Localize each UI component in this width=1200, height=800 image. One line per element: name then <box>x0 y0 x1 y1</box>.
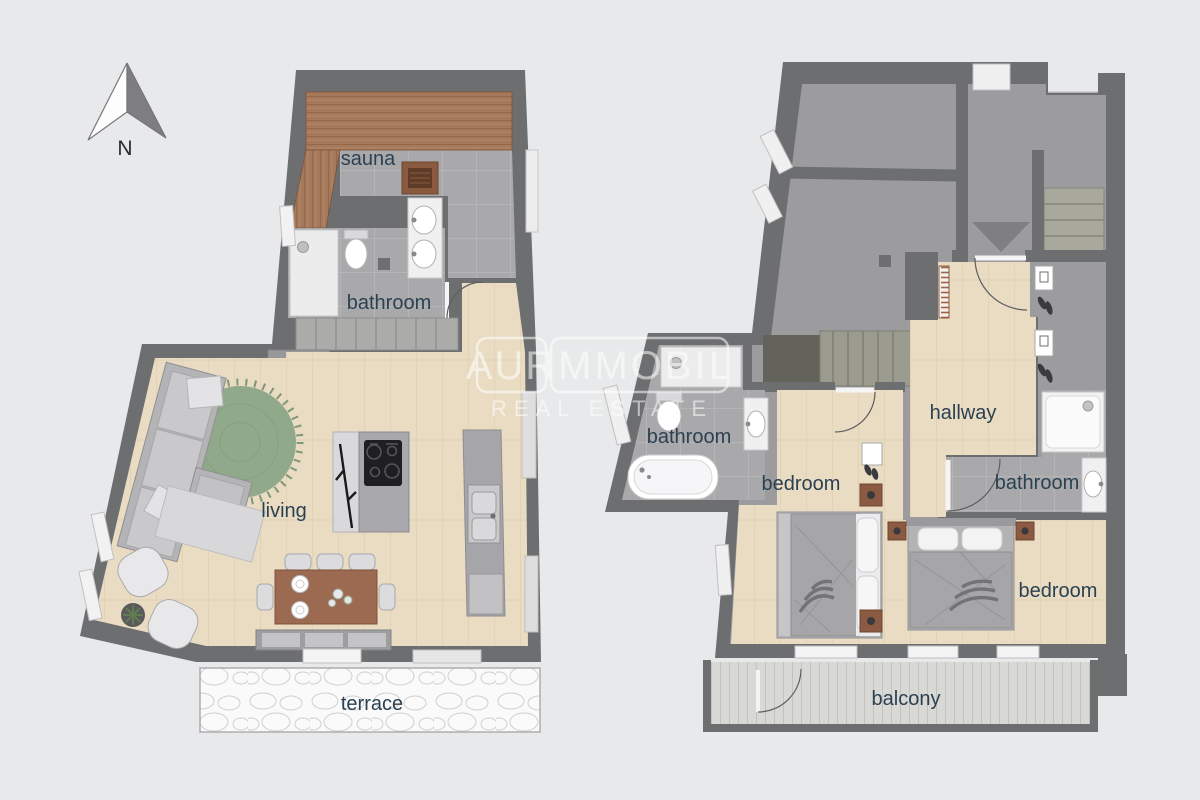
dining-chair <box>257 584 273 610</box>
room-label-balcony: balcony <box>872 688 941 710</box>
balcony: balcony <box>703 654 1127 732</box>
double-sink <box>408 198 442 278</box>
room-label-terrace: terrace <box>341 693 403 715</box>
room-label-bathroom-left: bathroom <box>647 426 732 448</box>
room-label-bedroom-right: bedroom <box>1019 580 1098 602</box>
dining-chair <box>379 584 395 610</box>
sink-right <box>1082 458 1106 512</box>
plan-left: terrace sauna bathroom living <box>79 70 541 732</box>
dining-table <box>275 570 377 624</box>
sink-left <box>744 398 768 450</box>
dining-chair <box>349 554 375 570</box>
room-label-bedroom-left: bedroom <box>762 473 841 495</box>
watermark-subtitle: REAL ESTATE <box>491 396 713 421</box>
watermark-brand-left: AUR <box>466 344 556 388</box>
dining-chair <box>317 554 343 570</box>
kitchen-island <box>333 432 409 532</box>
shaft <box>378 258 390 270</box>
cooktop <box>364 440 402 486</box>
watermark: AUR IMMOBIL REAL ESTATE <box>466 338 734 421</box>
floor-plan-drawing: N <box>0 0 1200 800</box>
room-label-living: living <box>261 500 307 522</box>
bed-right <box>906 518 1016 630</box>
sauna-heater <box>402 162 438 194</box>
room-label-bathroom-upper: bathroom <box>347 292 432 314</box>
room-label-sauna: sauna <box>341 148 396 170</box>
north-arrow-icon: N <box>88 63 166 160</box>
toilet-upper <box>344 230 368 269</box>
dining-chair <box>285 554 311 570</box>
bathtub <box>628 455 718 499</box>
sauna-bench-top <box>306 92 512 150</box>
north-label: N <box>117 137 132 160</box>
room-label-hallway: hallway <box>930 402 997 424</box>
stairs-middle <box>763 331 913 386</box>
shower-upper <box>290 230 338 316</box>
radiator <box>939 266 949 318</box>
stairs-upper-flight <box>296 318 458 350</box>
room-label-bathroom-right: bathroom <box>995 472 1080 494</box>
terrace: terrace <box>200 668 540 732</box>
plant <box>121 603 145 627</box>
floor-plan-page: N <box>0 0 1200 800</box>
kitchen-counter <box>463 430 505 616</box>
watermark-brand-right: IMMOBIL <box>544 344 734 388</box>
shower-right <box>1042 392 1104 452</box>
